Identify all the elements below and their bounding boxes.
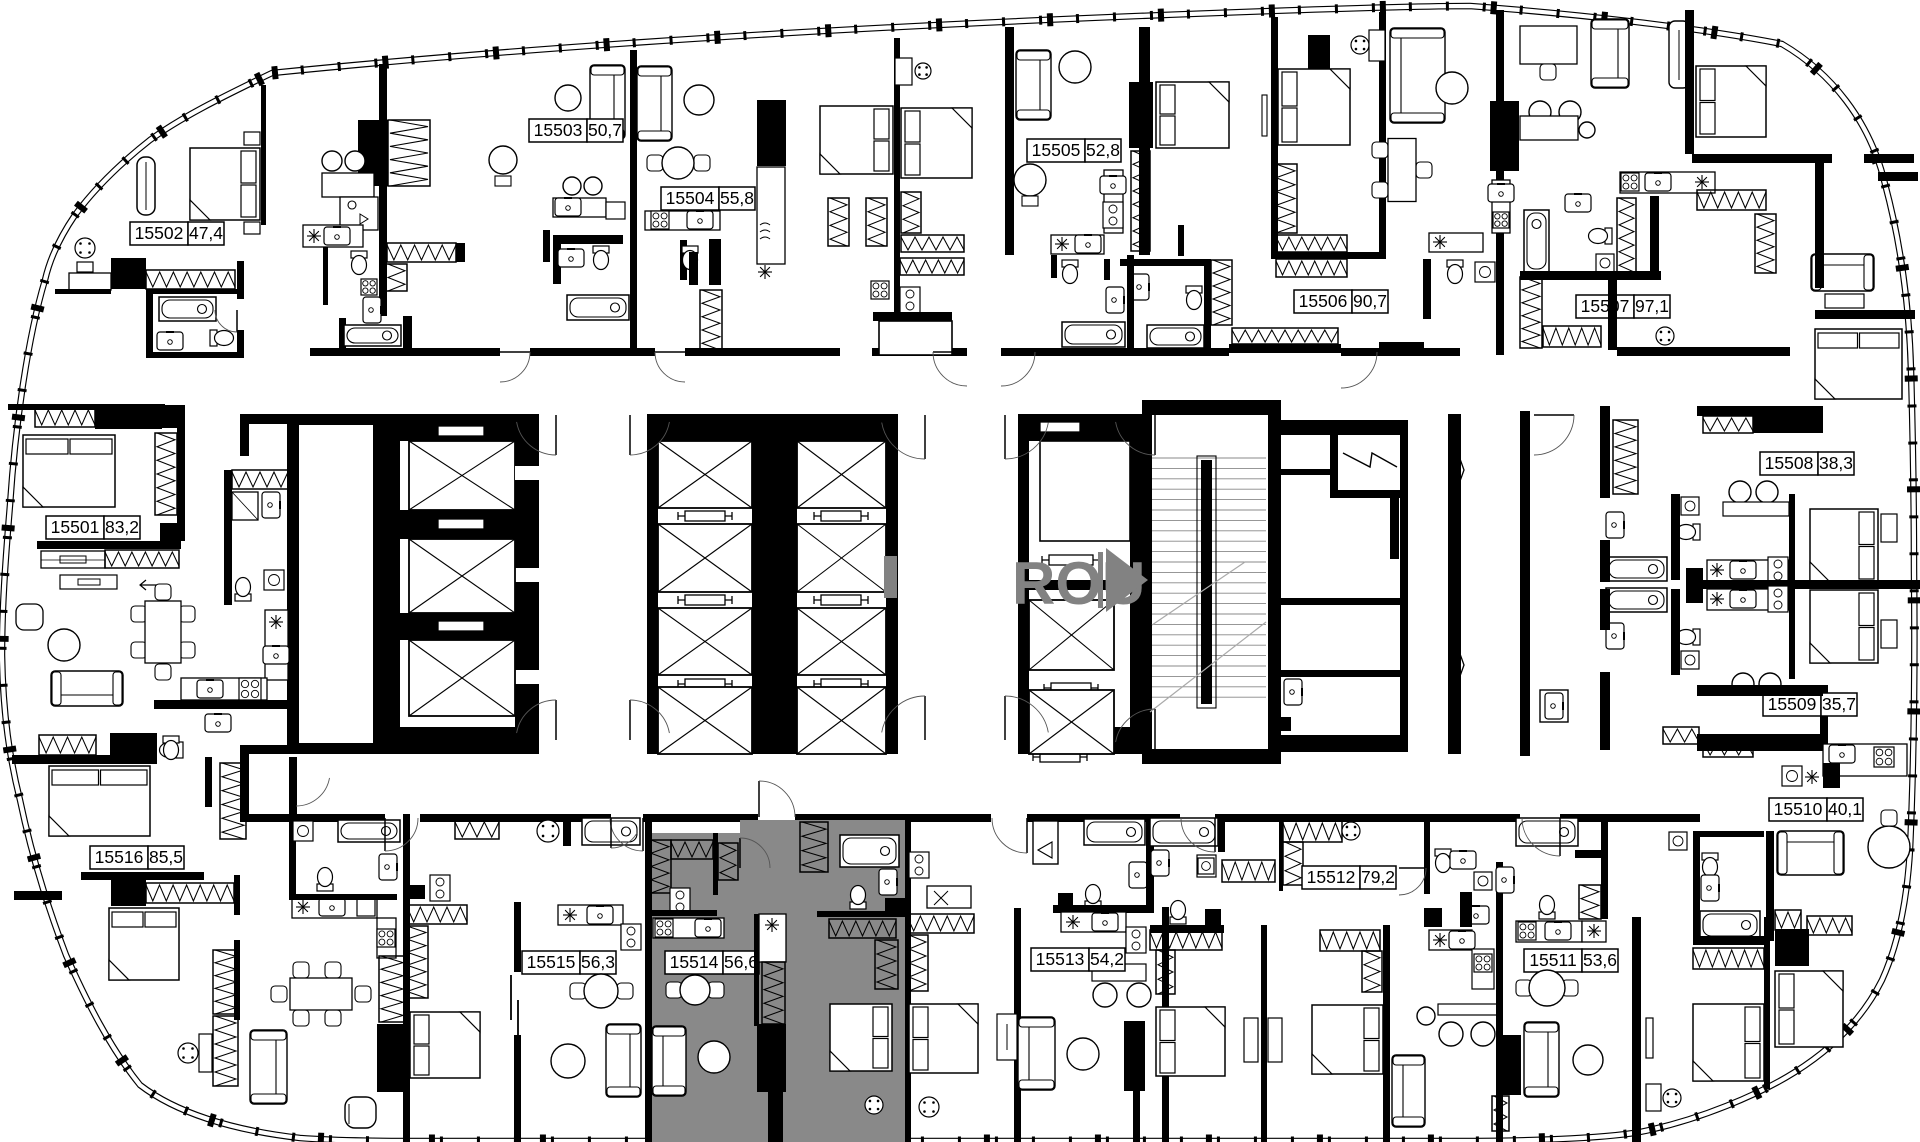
svg-text:53,6: 53,6	[1583, 950, 1617, 970]
svg-text:52,8: 52,8	[1086, 140, 1120, 160]
svg-text:15505: 15505	[1032, 140, 1081, 160]
svg-text:15507: 15507	[1581, 296, 1630, 316]
svg-text:15515: 15515	[527, 952, 576, 972]
svg-text:40,1: 40,1	[1828, 799, 1862, 819]
svg-text:15513: 15513	[1036, 949, 1085, 969]
svg-text:56,3: 56,3	[581, 952, 615, 972]
svg-text:55,8: 55,8	[720, 188, 754, 208]
svg-text:54,2: 54,2	[1090, 949, 1124, 969]
svg-text:90,7: 90,7	[1353, 291, 1387, 311]
svg-text:15503: 15503	[534, 120, 583, 140]
svg-text:15501: 15501	[51, 517, 100, 537]
svg-text:83,2: 83,2	[105, 517, 139, 537]
svg-text:38,3: 38,3	[1819, 453, 1853, 473]
svg-text:15510: 15510	[1774, 799, 1823, 819]
svg-text:97,1: 97,1	[1635, 296, 1669, 316]
svg-text:85,5: 85,5	[149, 847, 183, 867]
svg-text:15508: 15508	[1765, 453, 1814, 473]
svg-text:47,4: 47,4	[189, 223, 223, 243]
svg-text:79,2: 79,2	[1361, 867, 1395, 887]
svg-text:35,7: 35,7	[1822, 694, 1856, 714]
svg-text:50,7: 50,7	[588, 120, 622, 140]
svg-text:15504: 15504	[666, 188, 715, 208]
svg-text:15509: 15509	[1768, 694, 1817, 714]
svg-text:15516: 15516	[95, 847, 144, 867]
svg-text:56,6: 56,6	[724, 952, 758, 972]
svg-text:15512: 15512	[1307, 867, 1356, 887]
svg-text:15502: 15502	[135, 223, 184, 243]
svg-text:15514: 15514	[670, 952, 719, 972]
svg-text:15511: 15511	[1529, 950, 1576, 970]
svg-text:15506: 15506	[1299, 291, 1348, 311]
